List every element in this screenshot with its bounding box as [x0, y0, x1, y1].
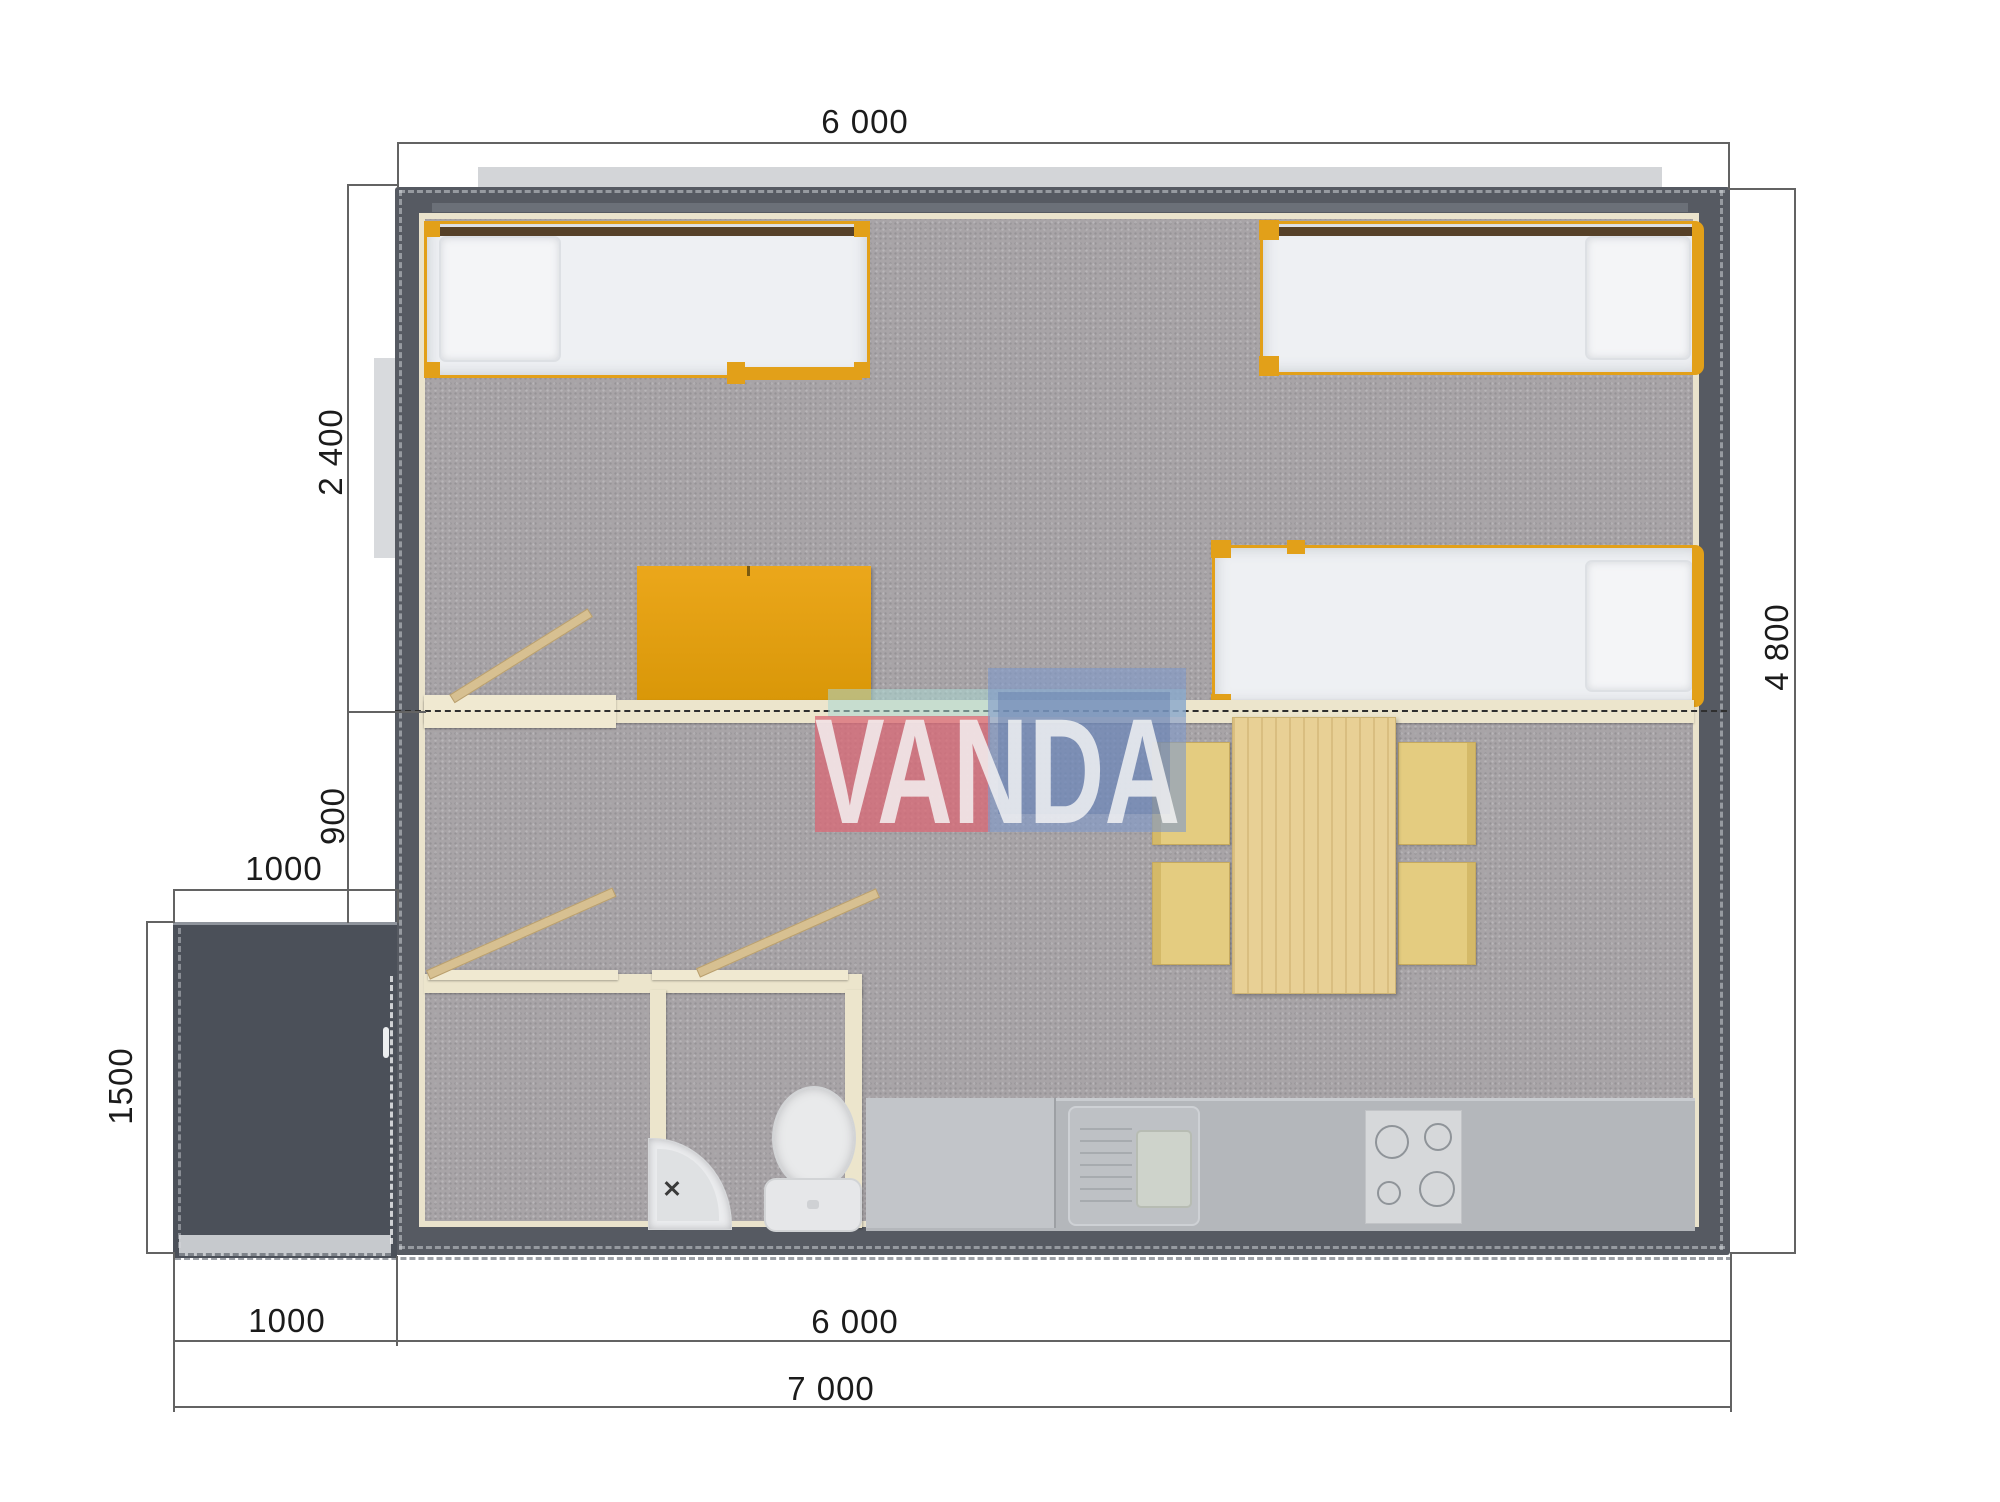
dim-ext [173, 1254, 175, 1412]
dining-chair [1152, 742, 1230, 845]
dim-ext [146, 1252, 175, 1254]
bath-door-frame [652, 970, 848, 980]
dining-table [1232, 717, 1396, 994]
bed-top-right [1260, 221, 1704, 375]
toilet-bowl [772, 1086, 856, 1190]
bed-pillow [1585, 236, 1691, 360]
left-wall-window [374, 358, 396, 558]
dim-line-bottom-chain [173, 1340, 1732, 1342]
toilet-tank [764, 1178, 862, 1232]
wardrobe [637, 566, 871, 701]
burner-icon [1419, 1171, 1455, 1207]
porch-dash-left [178, 928, 181, 1248]
dim-line-7000 [173, 1406, 1732, 1408]
bed-frame-bracket [424, 221, 440, 237]
dim-ext [1730, 1254, 1732, 1412]
kitchen-appliance-block [866, 1098, 1056, 1228]
chair-back [1467, 863, 1475, 964]
dim-ext [396, 1256, 398, 1346]
dim-bottom-porch: 1000 [217, 1304, 357, 1338]
dim-ext [397, 889, 399, 923]
dim-bottom-total: 7 000 [761, 1372, 901, 1406]
bed-side-rail [1692, 548, 1701, 704]
dining-chair [1152, 862, 1230, 965]
burner-icon [1375, 1125, 1409, 1159]
dim-top-width: 6 000 [795, 105, 935, 139]
burner-icon [1377, 1181, 1401, 1205]
dim-line-porch-1000 [173, 889, 399, 891]
dim-ext [1728, 142, 1730, 190]
bed-foot-rail-bracket [727, 362, 745, 384]
bed-side-rail [1692, 224, 1701, 372]
bed-headboard [435, 227, 859, 236]
bed-frame-bracket [424, 362, 440, 378]
dim-ext [1730, 1252, 1795, 1254]
stove-hob [1365, 1110, 1462, 1224]
dim-porch-height: 1500 [104, 1016, 138, 1156]
entry-door-line [390, 976, 393, 1244]
partition-axis-line [395, 710, 1727, 712]
bed-pillow [439, 236, 561, 362]
bed-middle-right [1212, 545, 1704, 707]
dining-chair [1398, 742, 1476, 845]
top-wall-step [432, 203, 1688, 212]
wall-dash-left [399, 190, 402, 1250]
bed-frame-bracket [1211, 540, 1231, 558]
bed-frame-bracket [1259, 220, 1279, 240]
dim-ext [397, 142, 399, 188]
toilet-flush-button [807, 1200, 819, 1209]
dim-ext [1729, 188, 1795, 190]
bed-frame-bracket [1259, 356, 1279, 376]
dim-line-4800 [1794, 188, 1796, 1254]
hall-door-frame [428, 970, 618, 980]
chair-back [1153, 863, 1161, 964]
bed-headboard [1273, 227, 1693, 236]
roof-eave-strip [478, 167, 1662, 189]
dim-ext [347, 184, 399, 186]
bed-top-left [424, 221, 870, 378]
dim-ext [347, 711, 426, 713]
dining-chair [1398, 862, 1476, 965]
drainboard-ridges [1080, 1128, 1132, 1208]
dim-bottom-house: 6 000 [785, 1305, 925, 1339]
entry-door-handle-icon [383, 1027, 389, 1058]
dim-bedroom-depth: 2 400 [314, 382, 348, 522]
dim-porch-width: 1000 [214, 852, 354, 886]
wall-dash-right [1720, 190, 1723, 1250]
dim-line-1500 [146, 921, 148, 1254]
burner-icon [1424, 1123, 1452, 1151]
chair-back [1153, 743, 1161, 844]
bed-frame-bracket [854, 221, 870, 237]
ground-dash-line [175, 1257, 1732, 1260]
bed-frame-bracket [1287, 540, 1305, 554]
chair-back [1467, 743, 1475, 844]
bed-foot-rail [735, 367, 862, 380]
porch-step [179, 1235, 391, 1256]
kitchen-sink-unit [1068, 1106, 1200, 1226]
dim-ext [173, 889, 175, 923]
bed-pillow [1585, 560, 1693, 692]
dim-ext [146, 921, 175, 923]
wardrobe-door-split [747, 566, 750, 576]
entry-porch [173, 922, 397, 1258]
kitchen-sink-basin [1136, 1130, 1192, 1208]
wall-dash-top [399, 190, 1725, 193]
floor-plan-canvas: VANDA 6 000 2 400 900 1000 1500 4 800 10… [0, 0, 2000, 1502]
wall-dash-bottom [399, 1246, 1725, 1249]
dim-line-top-6000 [397, 142, 1729, 144]
dim-right-height: 4 800 [1760, 577, 1794, 717]
